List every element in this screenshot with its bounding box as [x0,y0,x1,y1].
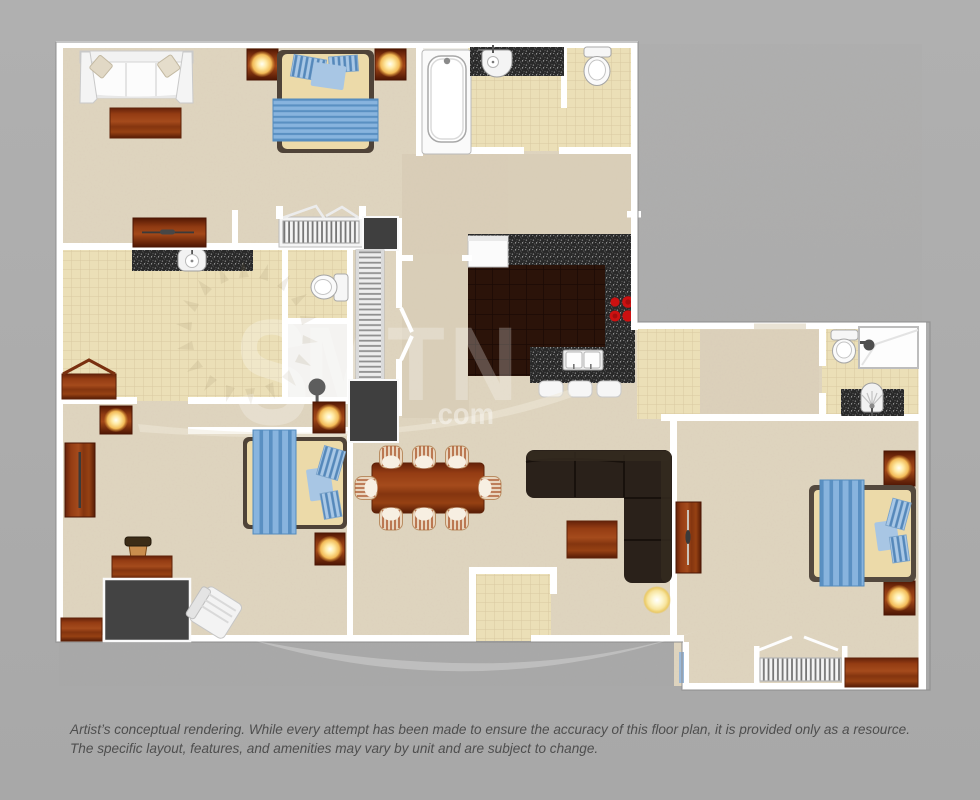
svg-text:Artist’s conceptual rendering.: Artist’s conceptual rendering. While eve… [69,722,910,737]
svg-text:The specific layout, features,: The specific layout, features, and ameni… [70,741,598,756]
svg-text:.com: .com [430,398,494,431]
